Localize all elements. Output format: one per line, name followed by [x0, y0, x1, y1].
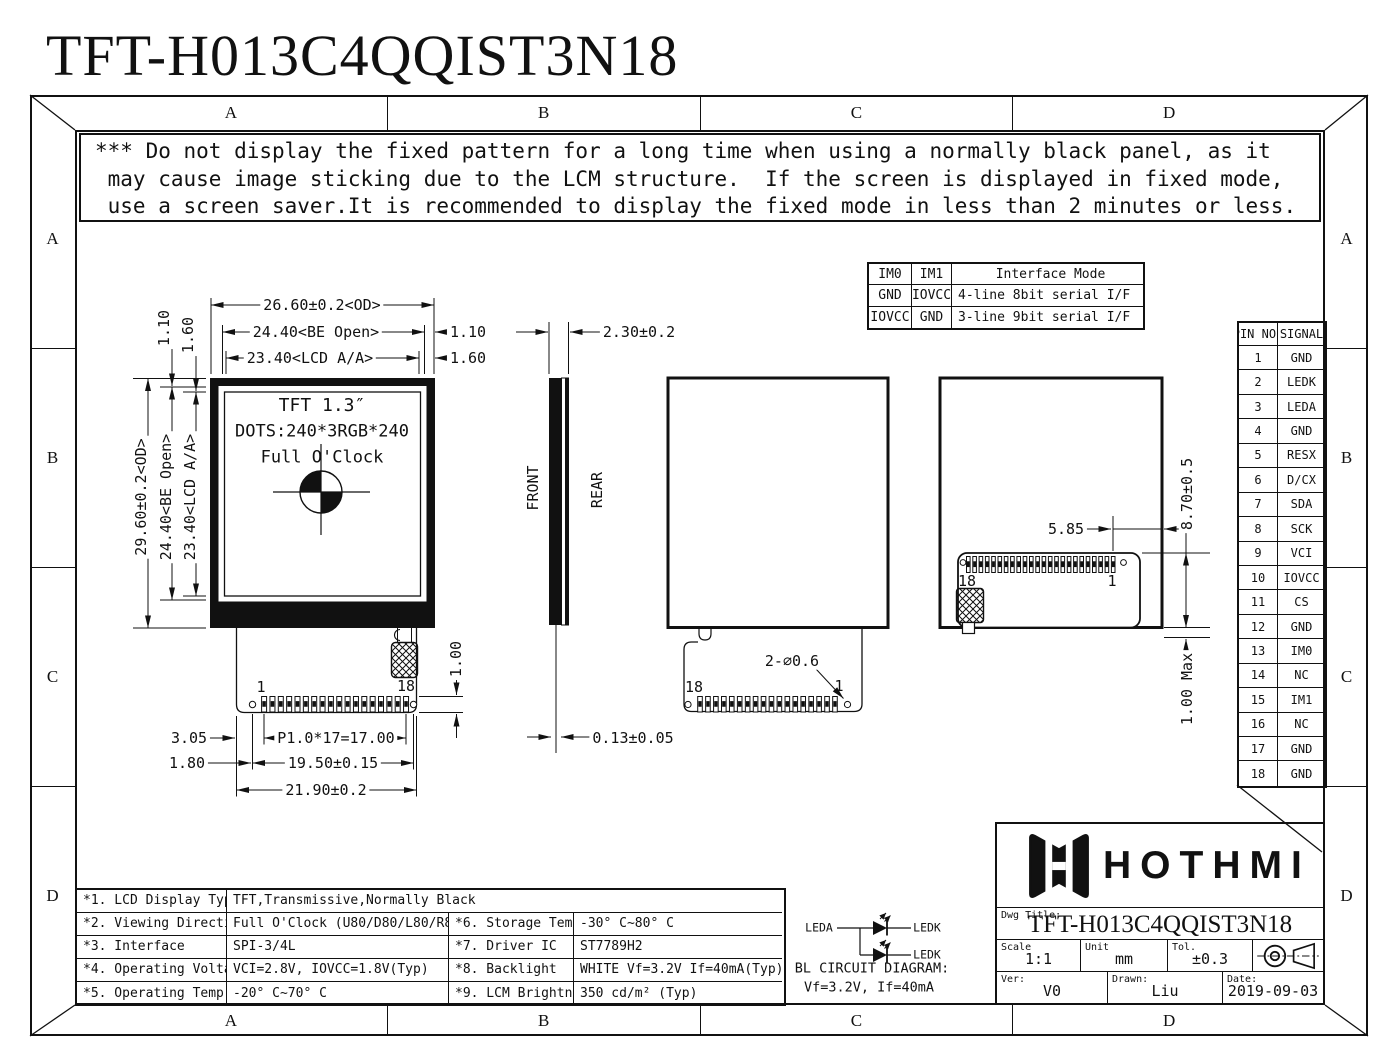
drawn-label: Drawn: [1112, 974, 1148, 985]
zone-label: D [1013, 1005, 1325, 1036]
spec-value: TFT,Transmissive,Normally Black [227, 890, 782, 913]
spec-value: 350 cd/m² (Typ) [574, 982, 782, 1005]
scale-row: Scale 1:1 Unit mm Tol. ±0.3 [997, 940, 1323, 972]
bl-leda-label: LEDA [805, 922, 833, 935]
spec-value: ST7789H2 [574, 936, 782, 959]
pin-signal: NC [1278, 664, 1325, 688]
pin-signal: IM0 [1278, 639, 1325, 663]
dim-gap-max: 1.00 Max [1179, 650, 1196, 728]
dim-pitch: P1.0*17=17.00 [274, 730, 397, 747]
pin-signal: GND [1278, 346, 1325, 370]
ver-label: Ver: [1001, 974, 1025, 985]
dim-holes: 2-∅0.6 [762, 653, 822, 670]
pin-strip-center [698, 697, 838, 713]
pin-signal: VCI [1278, 542, 1325, 566]
pin-signal-table: PIN NO. SIGNAL 1 GND 2 LEDK 3 LEDA 4 GND… [1237, 321, 1327, 788]
brand-row: HOTHMI [997, 824, 1323, 908]
pin-signal: D/CX [1278, 468, 1325, 492]
backlight-connector-icon [392, 628, 418, 678]
ver-value: V0 [1043, 982, 1061, 1000]
pin-no: 4 [1239, 419, 1278, 443]
dwg-title-row: Dwg Title: TFT-H013C4QQIST3N18 [997, 908, 1323, 940]
bl-caption: BL CIRCUIT DIAGRAM: [795, 962, 949, 977]
side-front-label: FRONT [525, 465, 542, 510]
ver-cell: Ver: V0 [997, 972, 1108, 1003]
pin-no: 11 [1239, 590, 1278, 614]
dim-right-gap1: 1.10 [447, 324, 489, 341]
pin-signal: GND [1278, 737, 1325, 761]
led-icon [873, 913, 891, 936]
dwg-title-label: Dwg Title: [1001, 910, 1061, 921]
zone-band-top: A B C D [75, 95, 1325, 130]
tol-label: Tol. [1172, 942, 1196, 953]
pin-signal: IOVCC [1278, 566, 1325, 590]
bl-caption: Vf=3.2V, If=40mA [804, 981, 934, 996]
zone-label: C [701, 1005, 1014, 1036]
pin-signal: GND [1278, 761, 1325, 785]
pin-signal: SDA [1278, 493, 1325, 517]
zone-label: D [1013, 95, 1325, 130]
pin-signal: CS [1278, 590, 1325, 614]
pin-no: 18 [1239, 761, 1278, 785]
pin-no: 7 [1239, 493, 1278, 517]
spec-value: -30° C~80° C [574, 913, 782, 936]
pin-no: 1 [1239, 346, 1278, 370]
pin-number-last: 18 [685, 679, 703, 696]
zone-label: A [75, 95, 388, 130]
pin-signal: SCK [1278, 517, 1325, 541]
side-rear-label: REAR [589, 472, 606, 508]
drawn-cell: Drawn: Liu [1108, 972, 1223, 1003]
side-view [516, 322, 601, 753]
drawing-sheet: TFT-H013C4QQIST3N18 A B C D A B C D A B … [0, 0, 1400, 1055]
col-header: Interface Mode [952, 264, 1143, 285]
col-header: SIGNAL [1278, 323, 1325, 346]
pin-no: 6 [1239, 468, 1278, 492]
date-label: Date: [1227, 974, 1257, 985]
spec-label: *9. LCM Brightness [449, 982, 574, 1005]
dim-thickness: 2.30±0.2 [600, 324, 678, 341]
unit-label: Unit [1085, 942, 1109, 953]
bl-ledk-label: LEDK [913, 949, 941, 962]
unit-cell: Unit mm [1081, 940, 1168, 971]
pin-no: 9 [1239, 542, 1278, 566]
dim-width-od: 26.60±0.2<OD> [260, 297, 383, 314]
spec-value: SPI-3/4L [227, 936, 449, 959]
table-cell: IOVCC [912, 285, 952, 306]
warning-note: *** Do not display the fixed pattern for… [79, 133, 1321, 222]
title-block: HOTHMI Dwg Title: TFT-H013C4QQIST3N18 Sc… [995, 822, 1325, 1005]
zone-label: A [75, 1005, 388, 1036]
pin-no: 3 [1239, 395, 1278, 419]
col-header: IM0 [869, 264, 912, 285]
dim-top-gap1: 1.10 [156, 307, 173, 349]
version-row: Ver: V0 Drawn: Liu Date: 2019-09-03 [997, 972, 1323, 1003]
pin-no: 2 [1239, 370, 1278, 394]
tol-value: ±0.3 [1192, 950, 1228, 968]
pin-no: 15 [1239, 688, 1278, 712]
dim-fold: 8.70±0.5 [1179, 455, 1196, 533]
zone-band-left: A B C D [30, 130, 75, 1005]
pin-number-first: 1 [256, 679, 265, 696]
pin-no: 12 [1239, 615, 1278, 639]
table-cell: 3-line 9bit serial I/F [952, 307, 1143, 328]
brand-name: HOTHMI [1103, 844, 1311, 888]
dim-pin-offset: 3.05 [168, 730, 210, 747]
zone-label: A [1325, 130, 1368, 349]
spec-label: *7. Driver IC [449, 936, 574, 959]
zone-band-bottom: A B C D [75, 1005, 1325, 1036]
pin-strip-right [967, 557, 1116, 573]
projection-symbol-icon [1254, 942, 1322, 970]
dim-hole-span: 19.50±0.15 [285, 755, 381, 772]
pin-no: 16 [1239, 713, 1278, 737]
pin-signal: LEDK [1278, 370, 1325, 394]
zone-label: B [388, 1005, 701, 1036]
zone-label: C [1325, 568, 1368, 787]
spec-value: Full O'Clock (U80/D80/L80/R80) [227, 913, 449, 936]
led-icon [873, 940, 891, 963]
scale-cell: Scale 1:1 [997, 940, 1081, 971]
tol-cell: Tol. ±0.3 [1168, 940, 1253, 971]
pin-no: 5 [1239, 444, 1278, 468]
spec-value: VCI=2.8V, IOVCC=1.8V(Typ) [227, 959, 449, 982]
spec-table: *1. LCD Display Type TFT,Transmissive,No… [75, 888, 786, 1006]
bl-circuit [837, 913, 911, 963]
zone-label: A [30, 130, 75, 349]
spec-value: -20° C~70° C [227, 982, 449, 1005]
scale-label: Scale [1001, 942, 1031, 953]
pin-no: 10 [1239, 566, 1278, 590]
screen-resolution-label: DOTS:240*3RGB*240 [235, 423, 409, 442]
pin-signal: GND [1278, 419, 1325, 443]
dim-height-aa: 23.40<LCD A/A> [182, 431, 199, 563]
pin-number-first: 1 [834, 678, 843, 695]
spec-label: *2. Viewing Direction [77, 913, 227, 936]
interface-mode-table: IM0 IM1 Interface Mode GND IOVCC 4-line … [867, 262, 1145, 330]
page-title: TFT-H013C4QQIST3N18 [46, 22, 678, 89]
drawn-value: Liu [1151, 982, 1178, 1000]
pin-no: 8 [1239, 517, 1278, 541]
unit-value: mm [1115, 950, 1133, 968]
spec-label: *3. Interface [77, 936, 227, 959]
dim-width-be: 24.40<BE Open> [250, 324, 382, 341]
zone-label: B [1325, 349, 1368, 568]
warning-line: *** Do not display the fixed pattern for… [95, 138, 1319, 166]
col-header: PIN NO. [1239, 323, 1278, 346]
table-cell: 4-line 8bit serial I/F [952, 285, 1143, 306]
warning-line: use a screen saver.It is recommended to … [95, 193, 1319, 221]
warning-line: may cause image sticking due to the LCM … [95, 166, 1319, 194]
zone-label: B [30, 349, 75, 568]
table-cell: IOVCC [869, 307, 912, 328]
zone-label: B [388, 95, 701, 130]
spec-label: *8. Backlight [449, 959, 574, 982]
dim-fpc-width: 21.90±0.2 [282, 782, 369, 799]
dim-height-od: 29.60±0.2<OD> [133, 435, 150, 558]
pin-signal: LEDA [1278, 395, 1325, 419]
pin-number-last: 18 [397, 678, 415, 695]
dim-width-aa: 23.40<LCD A/A> [244, 350, 376, 367]
dim-film: 0.13±0.05 [589, 730, 676, 747]
dim-edge: 5.85 [1045, 521, 1087, 538]
pin-signal: GND [1278, 615, 1325, 639]
pin-signal: RESX [1278, 444, 1325, 468]
table-cell: GND [869, 285, 912, 306]
dim-pin-length: 1.00 [448, 638, 465, 680]
pin-signal: IM1 [1278, 688, 1325, 712]
rear-view-right [940, 378, 1210, 722]
date-cell: Date: 2019-09-03 [1223, 972, 1323, 1003]
spec-value: WHITE Vf=3.2V If=40mA(Typ) [574, 959, 782, 982]
dim-top-gap2: 1.60 [180, 314, 197, 356]
pin-no: 13 [1239, 639, 1278, 663]
zone-label: C [30, 568, 75, 787]
pin-number-first: 1 [1107, 573, 1116, 590]
projection-symbol-cell [1253, 940, 1323, 971]
col-header: IM1 [912, 264, 952, 285]
dim-height-be: 24.40<BE Open> [158, 431, 175, 563]
spec-label: *1. LCD Display Type [77, 890, 227, 913]
dim-right-gap2: 1.60 [447, 350, 489, 367]
screen-size-label: TFT 1.3″ [279, 396, 366, 416]
spec-label: *6. Storage Temp [449, 913, 574, 936]
hothmi-logo-icon [1025, 832, 1093, 900]
zone-label: D [30, 787, 75, 1005]
pin-number-last: 18 [958, 573, 976, 590]
dim-hole-offset: 1.80 [166, 755, 208, 772]
zone-label: C [701, 95, 1014, 130]
pin-signal: NC [1278, 713, 1325, 737]
pin-no: 14 [1239, 664, 1278, 688]
bl-ledk-label: LEDK [913, 922, 941, 935]
spec-label: *4. Operating Voltage [77, 959, 227, 982]
backlight-connector-icon [957, 589, 984, 634]
table-cell: GND [912, 307, 952, 328]
zone-label: D [1325, 787, 1368, 1005]
zone-band-right: A B C D [1325, 130, 1368, 1005]
pin-strip-front [262, 697, 409, 713]
pin-no: 17 [1239, 737, 1278, 761]
screen-viewing-label: Full O'Clock [261, 449, 384, 468]
spec-label: *5. Operating Temp [77, 982, 227, 1005]
